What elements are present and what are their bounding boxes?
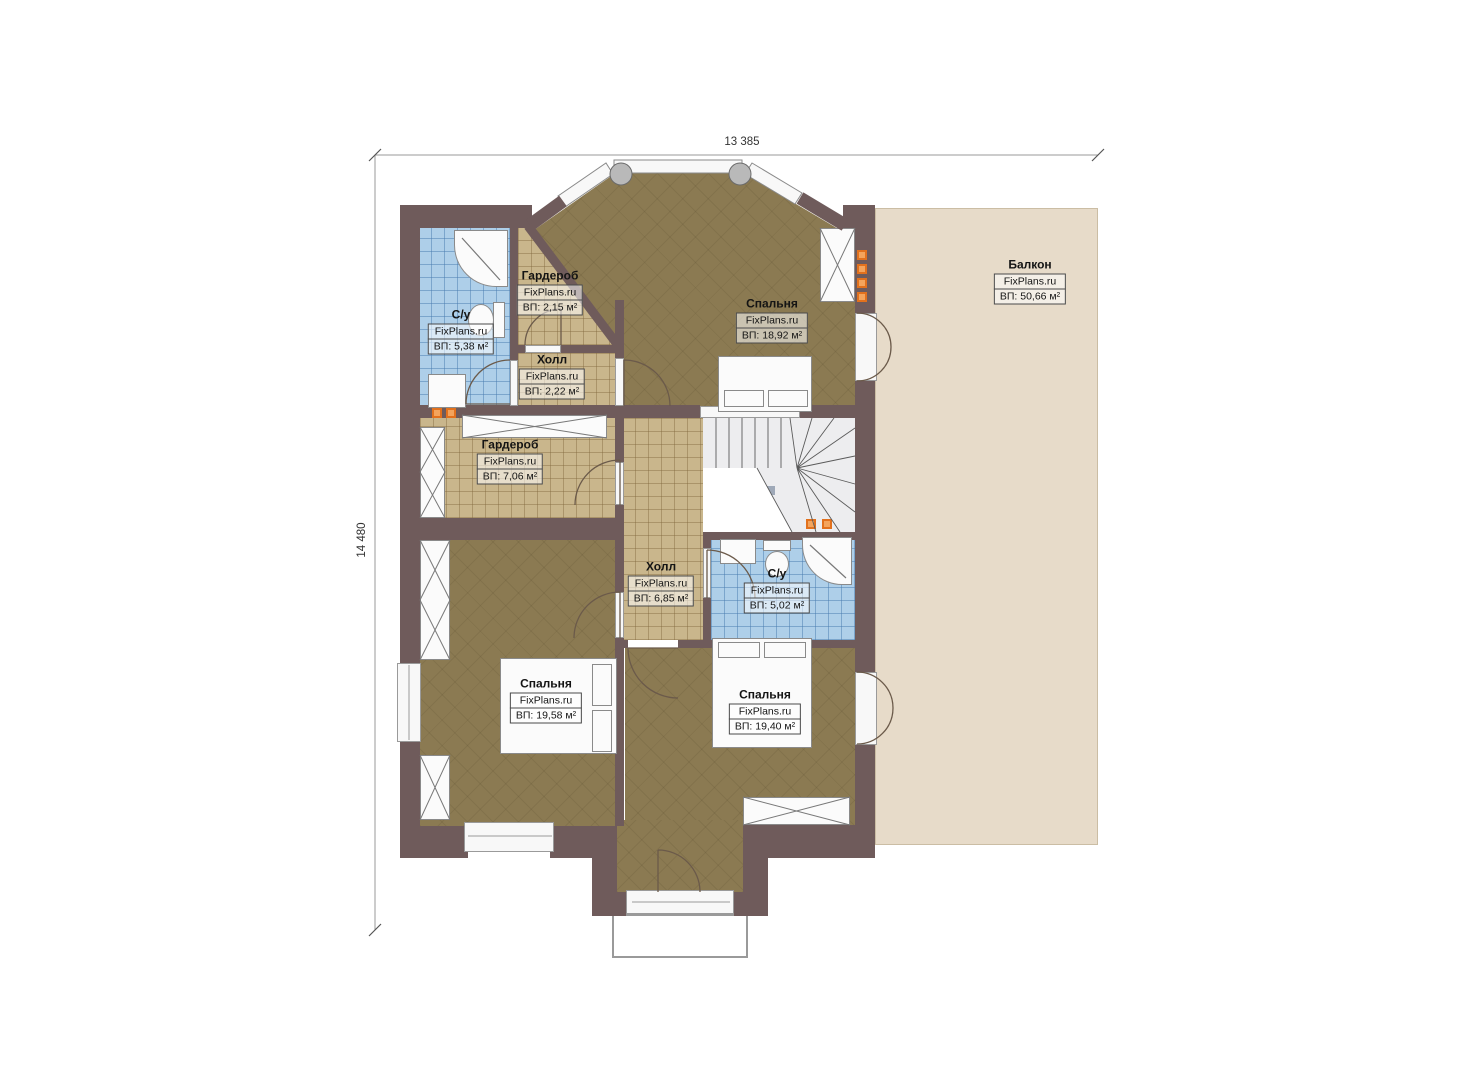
area-box: ВП: 6,85 м² <box>628 591 694 607</box>
vent-marker <box>806 519 816 529</box>
area-box: ВП: 19,40 м² <box>729 719 801 735</box>
floor-hall-mid <box>622 417 703 640</box>
room-name: Спальня <box>729 688 801 702</box>
floor-plan-canvas: 13 385 14 480 Балкон FixPlans.ru ВП: 50,… <box>0 0 1474 1080</box>
porch-door-opening <box>626 890 734 914</box>
wall-segment <box>617 892 626 916</box>
wall-segment <box>400 826 468 858</box>
wall-segment <box>400 205 420 663</box>
area-box: ВП: 5,38 м² <box>428 339 494 355</box>
area-box: ВП: 50,66 м² <box>994 289 1066 305</box>
floor-bedroom-right-bay <box>617 820 743 892</box>
wall-segment <box>703 598 711 640</box>
area-box: ВП: 18,92 м² <box>736 328 808 344</box>
stair-newel-post <box>766 486 775 495</box>
brand-box: FixPlans.ru <box>517 285 583 301</box>
pillow <box>768 390 808 407</box>
toilet-tank-top <box>493 302 505 338</box>
room-name: Гардероб <box>517 269 583 283</box>
room-name: Холл <box>628 560 694 574</box>
wall-segment <box>622 405 700 418</box>
wardrobe-cabinet <box>743 797 850 825</box>
wall-segment <box>615 300 624 358</box>
room-label-wardrobe-top: Гардероб FixPlans.ru ВП: 2,15 м² <box>517 269 583 316</box>
pillow <box>718 642 760 658</box>
vent-marker <box>432 408 442 418</box>
room-label-hall-mid: Холл FixPlans.ru ВП: 6,85 м² <box>628 560 694 607</box>
pillow <box>592 710 612 752</box>
wall-segment <box>743 843 768 916</box>
vent-marker <box>446 408 456 418</box>
area-box: ВП: 7,06 м² <box>477 469 543 485</box>
brand-box: FixPlans.ru <box>744 583 810 599</box>
balcony-door-top <box>855 313 877 381</box>
room-name: Гардероб <box>477 438 543 452</box>
wall-segment <box>592 840 617 916</box>
dimension-width: 13 385 <box>724 136 759 148</box>
vent-marker <box>822 519 832 529</box>
wall-segment <box>703 540 711 548</box>
room-label-wardrobe-mid: Гардероб FixPlans.ru ВП: 7,06 м² <box>477 438 543 485</box>
brand-box: FixPlans.ru <box>477 454 543 470</box>
wardrobe-cabinet <box>820 228 855 302</box>
room-label-bedroom-left: Спальня FixPlans.ru ВП: 19,58 м² <box>510 677 582 724</box>
brand-box: FixPlans.ru <box>428 324 494 340</box>
room-label-bedroom-top: Спальня FixPlans.ru ВП: 18,92 м² <box>736 297 808 344</box>
window-bottom-wall <box>464 822 554 852</box>
area-box: ВП: 2,22 м² <box>519 384 585 400</box>
door-opening-bedroom-left <box>615 592 624 638</box>
room-name: С/у <box>744 567 810 581</box>
pillow <box>592 664 612 706</box>
wall-segment <box>855 380 875 672</box>
vent-marker <box>857 278 867 288</box>
window-left-wall <box>397 663 421 742</box>
wardrobe-cabinet <box>420 755 450 820</box>
room-name: Холл <box>519 353 585 367</box>
door-opening-wardrobe-mid <box>615 462 624 505</box>
wardrobe-cabinet <box>420 540 450 660</box>
brand-box: FixPlans.ru <box>736 313 808 329</box>
vent-marker <box>857 292 867 302</box>
brand-box: FixPlans.ru <box>729 704 801 720</box>
wall-segment <box>734 892 743 916</box>
room-label-bedroom-right: Спальня FixPlans.ru ВП: 19,40 м² <box>729 688 801 735</box>
room-name: Балкон <box>994 258 1066 272</box>
door-opening-bathroom-top <box>510 360 518 406</box>
toilet-tank-mid <box>763 540 791 551</box>
brand-box: FixPlans.ru <box>519 369 585 385</box>
room-label-bathroom-top: С/у FixPlans.ru ВП: 5,38 м² <box>428 308 494 355</box>
room-label-balcony: Балкон FixPlans.ru ВП: 50,66 м² <box>994 258 1066 305</box>
brand-box: FixPlans.ru <box>628 576 694 592</box>
door-opening-bathroom-mid <box>703 548 711 598</box>
room-label-bathroom-mid: С/у FixPlans.ru ВП: 5,02 м² <box>744 567 810 614</box>
wardrobe-cabinet <box>462 415 607 438</box>
room-name: Спальня <box>736 297 808 311</box>
wall-segment <box>622 640 628 648</box>
area-box: ВП: 2,15 м² <box>517 300 583 316</box>
area-box: ВП: 19,58 м² <box>510 708 582 724</box>
vent-marker <box>857 250 867 260</box>
dimension-height: 14 480 <box>356 522 368 557</box>
area-box: ВП: 5,02 м² <box>744 598 810 614</box>
porch-outline <box>612 914 748 958</box>
bay-window-top <box>614 160 742 173</box>
pillow <box>764 642 806 658</box>
room-name: С/у <box>428 308 494 322</box>
pillow <box>724 390 764 407</box>
vent-marker <box>857 264 867 274</box>
washing-machine <box>428 374 466 408</box>
balcony-door-bottom <box>855 672 877 745</box>
room-name: Спальня <box>510 677 582 691</box>
floor-staircase <box>703 417 855 532</box>
wall-segment <box>400 518 622 540</box>
door-opening-bedroom-top <box>615 358 624 406</box>
sink-mid <box>720 539 756 564</box>
brand-box: FixPlans.ru <box>510 693 582 709</box>
wardrobe-cabinet <box>420 427 445 518</box>
room-label-hall-small: Холл FixPlans.ru ВП: 2,22 м² <box>519 353 585 400</box>
brand-box: FixPlans.ru <box>994 274 1066 290</box>
